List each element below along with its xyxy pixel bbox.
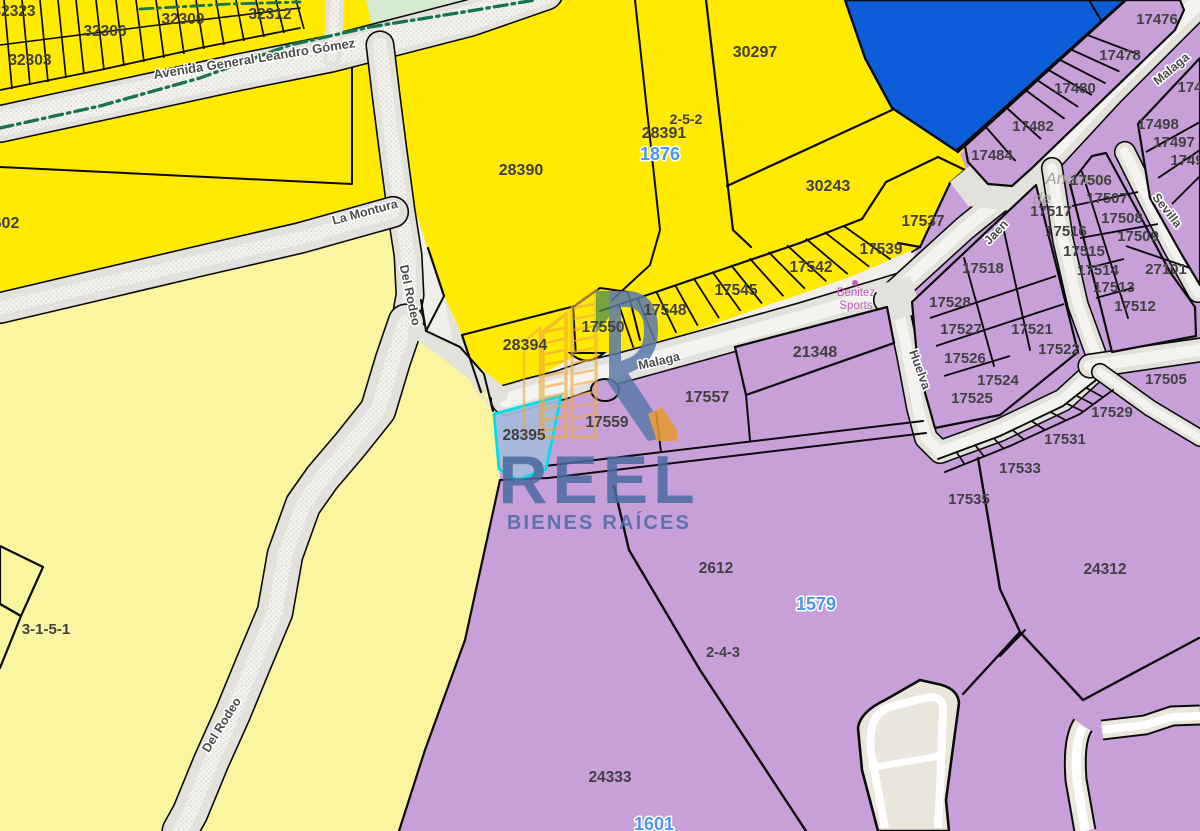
svg-text:Benitez: Benitez bbox=[837, 287, 876, 299]
svg-text:17550: 17550 bbox=[581, 319, 624, 336]
svg-text:REEL: REEL bbox=[498, 442, 699, 518]
svg-text:32323: 32323 bbox=[0, 3, 36, 20]
svg-text:17507: 17507 bbox=[1086, 190, 1128, 207]
svg-text:28391: 28391 bbox=[642, 125, 687, 142]
svg-text:17514: 17514 bbox=[1077, 262, 1119, 279]
svg-text:17559: 17559 bbox=[585, 414, 628, 431]
svg-text:32312: 32312 bbox=[248, 6, 291, 23]
svg-text:17516: 17516 bbox=[1045, 223, 1087, 240]
svg-text:17533: 17533 bbox=[999, 460, 1041, 477]
svg-text:17478: 17478 bbox=[1099, 47, 1141, 64]
svg-text:Sports: Sports bbox=[839, 300, 872, 312]
svg-text:17529: 17529 bbox=[1091, 404, 1133, 421]
svg-text:17512: 17512 bbox=[1114, 298, 1156, 315]
svg-text:17528: 17528 bbox=[929, 294, 971, 311]
svg-text:602: 602 bbox=[0, 215, 19, 232]
svg-text:17527: 17527 bbox=[940, 321, 982, 338]
svg-text:17476: 17476 bbox=[1136, 11, 1178, 28]
svg-text:1876: 1876 bbox=[640, 144, 680, 164]
svg-text:21348: 21348 bbox=[793, 344, 838, 361]
svg-text:2612: 2612 bbox=[699, 560, 733, 577]
svg-text:24333: 24333 bbox=[588, 769, 631, 786]
svg-text:17522: 17522 bbox=[1038, 341, 1080, 358]
svg-text:17537: 17537 bbox=[901, 213, 944, 230]
svg-text:28394: 28394 bbox=[503, 337, 548, 354]
svg-text:27101: 27101 bbox=[1145, 261, 1187, 278]
svg-text:17506: 17506 bbox=[1070, 172, 1112, 189]
svg-text:24312: 24312 bbox=[1083, 561, 1126, 578]
svg-text:32309: 32309 bbox=[161, 11, 204, 28]
svg-text:1601: 1601 bbox=[634, 814, 674, 831]
svg-text:17482: 17482 bbox=[1012, 118, 1054, 135]
svg-text:17524: 17524 bbox=[977, 372, 1019, 389]
svg-text:17548: 17548 bbox=[643, 302, 686, 319]
svg-text:17526: 17526 bbox=[944, 350, 986, 367]
svg-text:1579: 1579 bbox=[796, 594, 836, 614]
svg-text:17515: 17515 bbox=[1063, 243, 1105, 260]
svg-text:17542: 17542 bbox=[789, 259, 832, 276]
svg-text:17497: 17497 bbox=[1153, 134, 1195, 151]
svg-text:17521: 17521 bbox=[1011, 321, 1053, 338]
svg-text:28390: 28390 bbox=[499, 162, 544, 179]
svg-text:17517: 17517 bbox=[1030, 203, 1072, 220]
svg-text:17509: 17509 bbox=[1117, 228, 1159, 245]
svg-text:3-1-5-1: 3-1-5-1 bbox=[22, 621, 70, 638]
svg-text:17498: 17498 bbox=[1137, 116, 1179, 133]
svg-text:2-5-2: 2-5-2 bbox=[670, 111, 703, 127]
svg-text:32303: 32303 bbox=[8, 52, 51, 69]
svg-text:30297: 30297 bbox=[733, 44, 778, 61]
svg-text:17539: 17539 bbox=[859, 241, 902, 258]
svg-text:17525: 17525 bbox=[951, 390, 993, 407]
svg-text:17535: 17535 bbox=[948, 491, 990, 508]
svg-text:17508: 17508 bbox=[1101, 210, 1143, 227]
svg-text:32306: 32306 bbox=[83, 23, 126, 40]
svg-text:17531: 17531 bbox=[1044, 431, 1086, 448]
svg-text:17480: 17480 bbox=[1054, 80, 1096, 97]
svg-text:17518: 17518 bbox=[962, 260, 1004, 277]
svg-text:17484: 17484 bbox=[971, 147, 1013, 164]
svg-text:28395: 28395 bbox=[502, 427, 545, 444]
svg-text:17557: 17557 bbox=[685, 389, 730, 406]
svg-text:1749: 1749 bbox=[1170, 152, 1200, 169]
svg-text:30243: 30243 bbox=[806, 178, 851, 195]
svg-text:17545: 17545 bbox=[714, 282, 757, 299]
svg-text:17513: 17513 bbox=[1093, 279, 1135, 296]
svg-text:174: 174 bbox=[1177, 79, 1200, 96]
svg-text:BIENES RAÍCES: BIENES RAÍCES bbox=[507, 511, 691, 534]
svg-text:2-4-3: 2-4-3 bbox=[706, 645, 740, 661]
svg-text:17505: 17505 bbox=[1145, 371, 1187, 388]
